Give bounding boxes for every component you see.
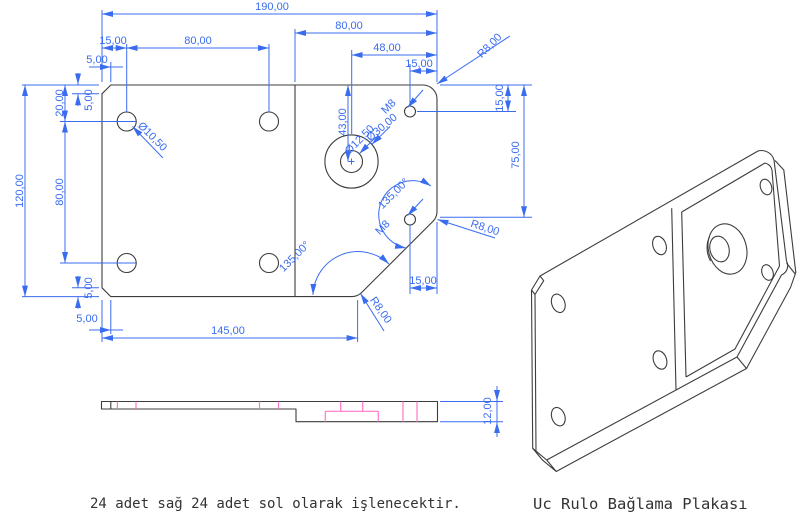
dim-angle-upper: 135,00° — [376, 176, 411, 211]
corner-hole-4 — [260, 254, 279, 273]
dim-right-section: 80,00 — [335, 20, 363, 32]
side-outline — [102, 402, 438, 422]
iso-corner-hole-1 — [549, 292, 568, 314]
iso-corner-hole-2 — [650, 234, 669, 256]
iso-view — [532, 151, 796, 472]
machining-note: 24 adet sağ 24 adet sol olarak işlenecek… — [90, 496, 461, 512]
dim-top-to-corner: 75,00 — [510, 141, 522, 169]
bore-center-mark — [349, 159, 355, 165]
dim-bottom-width: 145,00 — [211, 325, 245, 337]
dim-edge-to-hole: 15,00 — [99, 35, 127, 47]
dim-top-to-bore: 43,00 — [337, 108, 349, 136]
dim-top-to-m8: 15,00 — [494, 84, 506, 112]
iso-corner-hole-4 — [651, 349, 670, 371]
dimension-labels: 190,00 80,00 15,00 80,00 48,00 5,00 15,0… — [14, 1, 522, 337]
drawing-canvas: 190,00 80,00 15,00 80,00 48,00 5,00 15,0… — [0, 0, 800, 531]
dim-thickness: 12,00 — [482, 397, 494, 425]
dim-radius-top-right: R8,00 — [475, 31, 504, 60]
leader-lines — [133, 36, 511, 331]
dim-chamfer-bottom-h: 5,00 — [76, 313, 97, 325]
dim-radius-right: R8,00 — [469, 218, 501, 238]
dim-chamfer-top-h: 5,00 — [86, 54, 107, 66]
drawing-title: Uc Rulo Bağlama Plakası — [533, 495, 748, 513]
dim-m8-top: M8 — [379, 97, 398, 116]
dim-corner-hole-dia: Ø10,50 — [135, 120, 169, 154]
leader-m8-diag — [408, 199, 424, 216]
dim-m8-diag: M8 — [373, 218, 392, 237]
side-view: 12,00 — [102, 386, 504, 437]
iso-m8-hole-top — [758, 178, 774, 197]
dim-chamfer-bottom-v: 5,00 — [83, 277, 95, 298]
iso-thickness-edges — [532, 161, 796, 472]
corner-hole-2 — [260, 112, 279, 131]
dim-chamfer-top-v: 5,00 — [83, 89, 95, 110]
dim-total-height: 120,00 — [14, 174, 26, 208]
dim-total-width: 190,00 — [255, 1, 289, 13]
iso-corner-hole-3 — [549, 406, 568, 428]
dim-m8-diag-offset: 15,00 — [409, 275, 437, 287]
angle-lower-arc — [313, 252, 389, 295]
dim-hole-spacing-v: 80,00 — [54, 178, 66, 206]
drawing-sheet: 190,00 80,00 15,00 80,00 48,00 5,00 15,0… — [0, 0, 800, 531]
dim-hole-spacing: 80,00 — [184, 35, 212, 47]
dim-m8-to-edge: 15,00 — [405, 58, 433, 70]
iso-face-outline — [532, 151, 788, 460]
m8-hole-top — [405, 106, 416, 117]
dim-top-to-hole: 20,00 — [54, 89, 66, 117]
top-view: 190,00 80,00 15,00 80,00 48,00 5,00 15,0… — [14, 1, 532, 342]
dim-bore-to-edge: 48,00 — [373, 42, 401, 54]
m8-hole-diag — [405, 214, 416, 225]
hidden-hole-lines — [117, 402, 417, 422]
